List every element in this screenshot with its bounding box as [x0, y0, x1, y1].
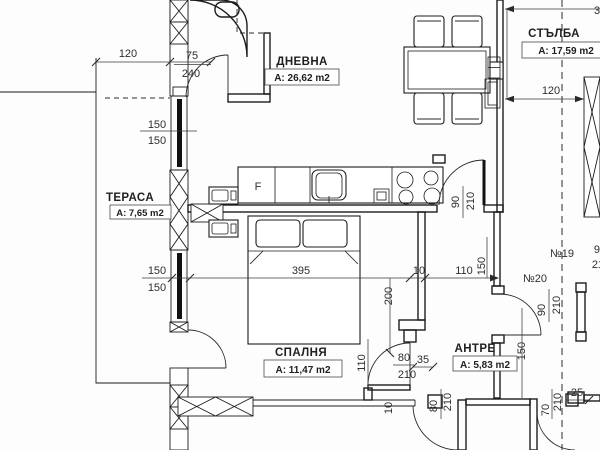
- kitchen-sink: [312, 170, 346, 203]
- window-bedroom-left: [171, 250, 187, 322]
- area-text-terasa: А: 7,65 m2: [116, 208, 164, 219]
- dim-window2-bottom: 150: [148, 282, 166, 294]
- window-living: [171, 96, 187, 170]
- area-text-dnevna: А: 26,62 m2: [274, 73, 330, 84]
- bottom-walls: [178, 392, 600, 450]
- dim-exit-door1-w: 80: [428, 400, 440, 412]
- room-label-stalba: СТЪЛБА: [528, 28, 580, 40]
- dim-n20-h: 210: [551, 296, 563, 314]
- pillow: [256, 220, 300, 247]
- dim-terrace-width: 120: [119, 48, 137, 60]
- dim-window1-bottom: 150: [148, 135, 166, 147]
- door-south-2: [537, 412, 575, 450]
- door-terrace-bedroom: [188, 330, 226, 368]
- door-n19-width: 90: [594, 244, 600, 256]
- dim-sill: 10: [383, 402, 395, 414]
- chair: [452, 93, 482, 124]
- terrace-outline: [0, 58, 170, 383]
- bed: [248, 216, 360, 344]
- top-entry-walls: [228, 0, 270, 102]
- dim-antre-width: 150: [516, 342, 528, 360]
- dim-top-partial: 3: [594, 5, 600, 17]
- dim-window1-top: 150: [148, 119, 166, 131]
- dim-exit-door1-h: 210: [442, 393, 454, 411]
- dim-corridor-width: 110: [455, 265, 473, 277]
- door-tag-n19: №19: [550, 248, 574, 260]
- dim-n20-w: 90: [536, 304, 548, 316]
- sideboard: [490, 62, 503, 79]
- dim-bedroom-wall: 395: [292, 265, 310, 277]
- room-label-antre: АНТРЕ: [455, 343, 496, 355]
- floorplan-canvas: ДНЕВНА А: 26,62 m2 СТЪЛБА А: 17,59 m2 ТЕ…: [0, 0, 600, 450]
- chair: [452, 16, 482, 47]
- dim-bedroom-door-w: 80: [398, 352, 410, 364]
- dim-bed-length: 200: [383, 287, 395, 305]
- curved-stair-band: [190, 0, 247, 57]
- area-text-antre: А: 5,83 m2: [460, 360, 510, 371]
- dim-exit-door2-h: 210: [552, 393, 564, 411]
- door-n20-arc: [500, 294, 541, 335]
- dim-wall-thickness: 10: [413, 265, 425, 277]
- stair-column: [584, 77, 600, 217]
- room-label-terasa: ТЕРАСА: [106, 192, 154, 204]
- dim-stairs-120: 120: [542, 85, 560, 97]
- chair: [414, 93, 444, 124]
- dim-corridor-height: 150: [476, 257, 488, 275]
- dim-window2-top: 150: [148, 265, 166, 277]
- door-tag-n20: №20: [523, 273, 547, 285]
- area-text-spalnya: А: 11,47 m2: [275, 365, 330, 376]
- dim-bedroom-door-h: 210: [398, 369, 416, 381]
- dim-entry-door-h: 240: [182, 68, 200, 80]
- door-bedroom: [368, 343, 410, 390]
- door-n19-jambs: [576, 283, 586, 341]
- dim-entry-door-w: 75: [186, 50, 198, 62]
- dim-bedroom-door-offset: 35: [417, 354, 429, 366]
- room-label-spalnya: СПАЛНЯ: [275, 347, 327, 359]
- dim-kitchen-door-h: 210: [465, 192, 477, 210]
- door-n19-height: 210: [592, 259, 600, 271]
- area-text-stalba: А: 17,59 m2: [538, 46, 594, 57]
- fridge-label: F: [255, 181, 262, 193]
- dim-exit-door2-w: 70: [540, 404, 552, 416]
- chair: [414, 16, 444, 47]
- room-label-dnevna: ДНЕВНА: [276, 56, 327, 68]
- kitchen-counter: [238, 167, 443, 204]
- dim-bedroom-door-side: 110: [356, 354, 368, 372]
- dim-offset-25: 25: [571, 387, 583, 399]
- floorplan-svg: ДНЕВНА А: 26,62 m2 СТЪЛБА А: 17,59 m2 ТЕ…: [0, 0, 600, 450]
- pillow: [303, 220, 347, 247]
- dim-kitchen-door-w: 90: [450, 196, 462, 208]
